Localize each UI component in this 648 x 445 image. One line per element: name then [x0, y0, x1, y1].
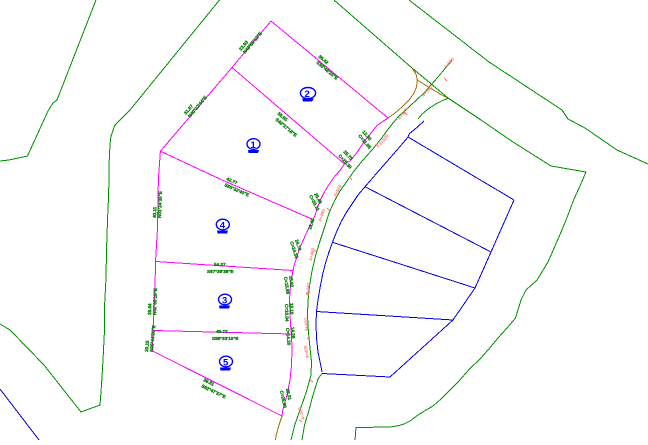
svg-text:18.40: 18.40 — [307, 217, 315, 230]
svg-text:C=16.04: C=16.04 — [284, 304, 290, 322]
svg-text:4: 4 — [220, 221, 226, 232]
svg-text:1: 1 — [251, 140, 257, 151]
svg-text:3: 3 — [222, 296, 227, 307]
svg-text:5: 5 — [223, 358, 229, 369]
svg-text:S88°33'10"E: S88°33'10"E — [212, 336, 239, 341]
svg-text:4+400: 4+400 — [303, 345, 310, 359]
svg-text:C=15.88: C=15.88 — [283, 276, 290, 294]
svg-text:N01°24'35"E: N01°24'35"E — [157, 191, 163, 218]
svg-text:4+500: 4+500 — [332, 183, 343, 197]
svg-text:S87°38'38"E: S87°38'38"E — [207, 269, 234, 274]
svg-text:54.37: 54.37 — [214, 262, 226, 267]
svg-text:4+420: 4+420 — [304, 318, 309, 332]
svg-text:4+560: 4+560 — [421, 84, 433, 97]
svg-text:2: 2 — [305, 89, 310, 100]
svg-text:4+440: 4+440 — [305, 282, 311, 296]
svg-text:C=14.20: C=14.20 — [285, 328, 292, 346]
svg-text:49.73: 49.73 — [216, 329, 228, 334]
svg-text:N05°44'20"E: N05°44'20"E — [149, 325, 156, 352]
svg-text:4+580: 4+580 — [443, 56, 455, 69]
svg-text:4+380: 4+380 — [297, 406, 306, 420]
svg-text:4+520: 4+520 — [378, 133, 390, 147]
svg-text:N02°05'18"E: N02°05'18"E — [152, 288, 158, 315]
